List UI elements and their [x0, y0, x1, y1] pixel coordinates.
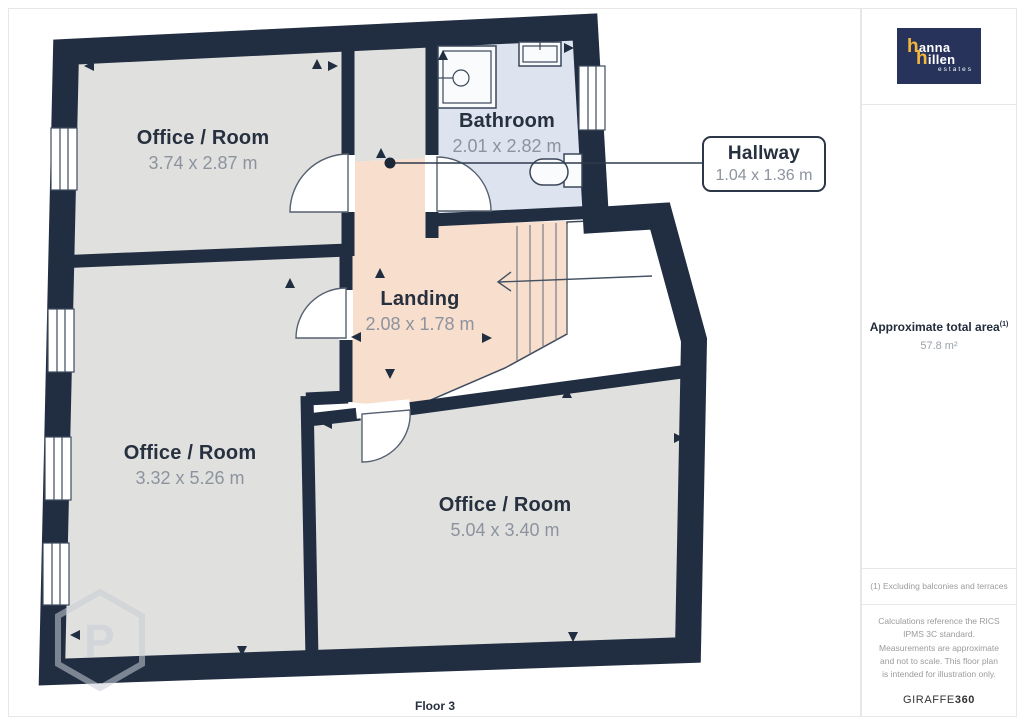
room-dimensions: 2.01 x 2.82 m [452, 135, 561, 158]
footnote: (1) Excluding balconies and terraces [862, 569, 1016, 606]
hallway-upper-floor [348, 34, 432, 162]
logo-accent-letter: h [916, 53, 928, 64]
sink [519, 42, 561, 66]
agency-logo-section: hanna hillen estates [862, 9, 1016, 105]
area-value: 57.8 m² [920, 340, 957, 352]
svg-text:P: P [84, 615, 115, 667]
room-name: Landing [365, 287, 474, 312]
room-label-bathroom: Bathroom 2.01 x 2.82 m [452, 109, 561, 158]
window [48, 309, 74, 372]
room-name: Bathroom [452, 109, 561, 134]
logo-tagline: estates [933, 66, 973, 73]
room-dimensions: 3.32 x 5.26 m [124, 467, 257, 490]
hallway-callout: Hallway 1.04 x 1.36 m [702, 136, 826, 192]
area-footnote-ref: (1) [1000, 321, 1009, 328]
room-dimensions: 5.04 x 3.40 m [439, 519, 572, 542]
window [45, 437, 71, 500]
floorplan-page: P Office / Room 3.74 x 2.87 m Bathroom 2… [0, 0, 1024, 724]
room-label-office-bottom-left: Office / Room 3.32 x 5.26 m [124, 441, 257, 490]
room-label-office-top-left: Office / Room 3.74 x 2.87 m [137, 126, 270, 175]
room-dimensions: 1.04 x 1.36 m [716, 166, 813, 185]
room-name: Office / Room [137, 126, 270, 151]
window [51, 128, 77, 190]
area-title: Approximate total area(1) [870, 320, 1009, 334]
room-name: Office / Room [124, 441, 257, 466]
brand-regular: GIRAFFE [903, 694, 955, 706]
total-area-section: Approximate total area(1) 57.8 m² [862, 105, 1016, 569]
room-name: Office / Room [439, 493, 572, 518]
info-sidebar: hanna hillen estates Approximate total a… [861, 8, 1017, 717]
room-label-office-bottom-right: Office / Room 5.04 x 3.40 m [439, 493, 572, 542]
logo-line-2: hillen [916, 53, 973, 65]
room-name: Hallway [728, 143, 800, 166]
shower [438, 46, 496, 108]
disclaimer-text: Calculations reference the RICS IPMS 3C … [876, 615, 1002, 681]
disclaimer-section: Calculations reference the RICS IPMS 3C … [862, 605, 1016, 716]
giraffe360-brand: GIRAFFE360 [903, 694, 975, 706]
logo-text: illen [928, 54, 956, 65]
window [579, 66, 605, 130]
room-dimensions: 2.08 x 1.78 m [365, 313, 474, 336]
room-dimensions: 3.74 x 2.87 m [137, 152, 270, 175]
window [43, 543, 69, 605]
room-label-landing: Landing 2.08 x 1.78 m [365, 287, 474, 336]
floor-label: Floor 3 [415, 699, 455, 713]
brand-bold: 360 [955, 694, 975, 706]
agency-logo: hanna hillen estates [897, 28, 981, 84]
